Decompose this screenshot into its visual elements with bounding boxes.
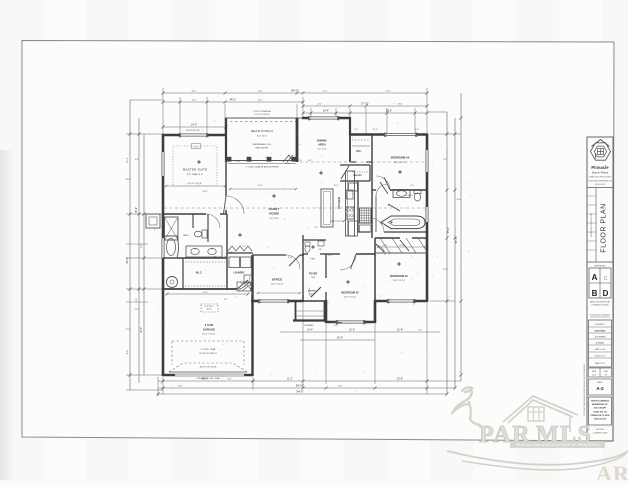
svg-text:12'-0": 12'-0" bbox=[258, 100, 263, 102]
svg-text:5'-4": 5'-4" bbox=[242, 246, 246, 248]
svg-text:12'-4": 12'-4" bbox=[307, 329, 313, 332]
svg-text:12'-8": 12'-8" bbox=[382, 245, 387, 247]
svg-text:SCALE 1/4"=1': SCALE 1/4"=1' bbox=[594, 355, 606, 358]
svg-text:GARAGE: GARAGE bbox=[203, 328, 215, 332]
svg-text:SLOPE 1/8" PER FT: SLOPE 1/8" PER FT bbox=[199, 353, 217, 355]
svg-text:POST: POST bbox=[285, 163, 291, 165]
svg-text:9'-0" CLG.: 9'-0" CLG. bbox=[317, 149, 327, 151]
svg-text:DAVID WADE: DAVID WADE bbox=[595, 330, 607, 333]
svg-text:12'-0": 12'-0" bbox=[258, 91, 263, 93]
svg-text:58'-10": 58'-10" bbox=[296, 384, 304, 388]
svg-text:14'-0": 14'-0" bbox=[202, 191, 207, 193]
svg-text:18'-4": 18'-4" bbox=[140, 327, 143, 333]
svg-text:OFFICE: OFFICE bbox=[272, 278, 282, 282]
svg-text:24'-6": 24'-6" bbox=[257, 185, 262, 187]
svg-text:Listing plan for Qualification: Listing plan for Qualification bbox=[590, 314, 611, 317]
svg-text:MASTER SUITE: MASTER SUITE bbox=[183, 168, 208, 172]
svg-text:55'-2": 55'-2" bbox=[447, 227, 450, 233]
svg-text:22'-8": 22'-8" bbox=[397, 378, 403, 381]
svg-text:20'-0" X 22'-0": 20'-0" X 22'-0" bbox=[203, 334, 216, 336]
svg-text:11'-4" X 12'-0": 11'-4" X 12'-0" bbox=[393, 280, 406, 282]
svg-text:COURT, STE. 100: COURT, STE. 100 bbox=[593, 411, 607, 413]
svg-text:DESIGN BY: DESIGN BY bbox=[595, 324, 605, 326]
svg-text:15'-4": 15'-4" bbox=[323, 91, 328, 93]
svg-text:14'-0": 14'-0" bbox=[191, 124, 197, 127]
svg-text:FLOOR PLAN: FLOOR PLAN bbox=[601, 203, 608, 252]
svg-text:DRIVEWAY 4" CONC. SLAB: DRIVEWAY 4" CONC. SLAB bbox=[197, 377, 221, 380]
svg-text:Pinnacle: Pinnacle bbox=[591, 165, 609, 170]
svg-text:9'-0": 9'-0" bbox=[443, 159, 447, 161]
svg-text:12'-8": 12'-8" bbox=[397, 329, 403, 332]
svg-text:A: A bbox=[592, 273, 598, 282]
svg-text:13'-0": 13'-0" bbox=[349, 329, 355, 332]
svg-text:UNFINISHED CLG.: UNFINISHED CLG. bbox=[252, 144, 271, 146]
svg-text:HALL: HALL bbox=[230, 251, 235, 254]
svg-text:9'-6": 9'-6" bbox=[136, 298, 138, 303]
svg-text:4225 CONCEPT: 4225 CONCEPT bbox=[594, 407, 607, 410]
svg-text:25'-6": 25'-6" bbox=[372, 129, 377, 131]
svg-text:FAMILY: FAMILY bbox=[269, 207, 280, 211]
svg-text:13'-2": 13'-2" bbox=[443, 269, 448, 271]
svg-text:3'-0": 3'-0" bbox=[415, 129, 419, 131]
svg-text:4'-6": 4'-6" bbox=[228, 379, 232, 381]
svg-text:B: B bbox=[592, 289, 598, 298]
svg-text:PENSACOLA, FL 32514: PENSACOLA, FL 32514 bbox=[591, 414, 610, 417]
svg-text:25'-6": 25'-6" bbox=[386, 91, 391, 93]
svg-text:IL-1706-10: IL-1706-10 bbox=[596, 343, 604, 345]
svg-text:46'-2": 46'-2" bbox=[230, 98, 237, 102]
svg-text:A-2: A-2 bbox=[596, 386, 604, 391]
svg-text:10'-0" X 11'-6": 10'-0" X 11'-6" bbox=[271, 284, 284, 286]
svg-text:ENTRY: ENTRY bbox=[308, 291, 316, 293]
svg-text:TILE: TILE bbox=[311, 277, 316, 279]
svg-text:(COV'D PORCH): (COV'D PORCH) bbox=[254, 114, 270, 116]
svg-text:Home Plans: Home Plans bbox=[592, 171, 609, 175]
svg-text:5'-4": 5'-4" bbox=[354, 129, 358, 131]
svg-text:13'-2": 13'-2" bbox=[333, 185, 338, 187]
svg-text:6'-0": 6'-0" bbox=[418, 330, 422, 332]
svg-text:BATH: BATH bbox=[183, 234, 189, 237]
svg-text:LIN.: LIN. bbox=[318, 249, 322, 251]
svg-text:SIDEWALK: SIDEWALK bbox=[304, 324, 314, 327]
svg-text:46'-2": 46'-2" bbox=[192, 91, 197, 93]
svg-text:11'-0": 11'-0" bbox=[410, 185, 415, 187]
svg-text:37'-10": 37'-10" bbox=[361, 102, 369, 106]
svg-text:8'-0": 8'-0" bbox=[308, 160, 312, 162]
svg-text:84'-0": 84'-0" bbox=[296, 390, 303, 394]
svg-text:11'-2": 11'-2" bbox=[287, 378, 293, 381]
svg-text:21'-8": 21'-8" bbox=[202, 292, 207, 294]
svg-text:6'-0": 6'-0" bbox=[334, 325, 338, 327]
svg-text:ROOM: ROOM bbox=[269, 212, 279, 216]
svg-text:20'-4": 20'-4" bbox=[126, 179, 131, 181]
svg-text:8'-0": 8'-0" bbox=[127, 350, 129, 355]
svg-text:REAR PORCH: REAR PORCH bbox=[251, 129, 273, 133]
svg-text:60'-0": 60'-0" bbox=[125, 257, 129, 264]
svg-text:LAUNDRY: LAUNDRY bbox=[233, 272, 245, 275]
svg-text:W.I.C.: W.I.C. bbox=[196, 272, 203, 275]
svg-text:ENGINEERING, INC.: ENGINEERING, INC. bbox=[592, 404, 609, 406]
svg-text:PANTRY: PANTRY bbox=[353, 174, 362, 177]
svg-text:22'-0": 22'-0" bbox=[126, 329, 131, 331]
svg-text:DESIGN & DRAWINGS: DESIGN & DRAWINGS bbox=[591, 400, 610, 403]
svg-text:SHEET: SHEET bbox=[597, 382, 603, 384]
svg-text:AREA: AREA bbox=[318, 143, 326, 147]
svg-text:16'X7' O.H. DOOR: 16'X7' O.H. DOOR bbox=[200, 367, 217, 369]
svg-text:4" CONC. SLAB: 4" CONC. SLAB bbox=[201, 348, 216, 351]
svg-text:6'-0": 6'-0" bbox=[298, 160, 302, 162]
svg-text:JOB NUMBER: JOB NUMBER bbox=[594, 337, 606, 339]
svg-text:26'-0": 26'-0" bbox=[337, 337, 343, 340]
svg-text:12'-4": 12'-4" bbox=[338, 386, 343, 388]
svg-text:BEDROOM #3: BEDROOM #3 bbox=[390, 274, 408, 278]
svg-text:8'-2": 8'-2" bbox=[318, 104, 322, 106]
svg-text:9'-0" TRAY CLG.: 9'-0" TRAY CLG. bbox=[187, 173, 204, 176]
svg-text:15'-4" X 16'-0": 15'-4" X 16'-0" bbox=[188, 183, 202, 185]
svg-text:PAGE 2 OF 6: PAGE 2 OF 6 bbox=[595, 362, 605, 365]
svg-text:9'-4" CLG.: 9'-4" CLG. bbox=[205, 306, 214, 308]
svg-text:9'-0" CLG.: 9'-0" CLG. bbox=[257, 136, 267, 138]
svg-text:DATE: 6-1-20: DATE: 6-1-20 bbox=[595, 348, 605, 351]
svg-text:10'-2": 10'-2" bbox=[287, 257, 292, 259]
svg-text:BATH: BATH bbox=[408, 194, 414, 197]
svg-text:26'-8": 26'-8" bbox=[135, 207, 138, 213]
svg-text:BEDROOM #2: BEDROOM #2 bbox=[341, 291, 359, 295]
svg-text:9'-8": 9'-8" bbox=[314, 227, 318, 229]
svg-text:D.D.: D.D. bbox=[194, 146, 198, 148]
svg-text:2 CAR: 2 CAR bbox=[205, 323, 213, 327]
svg-text:NOT FOR: NOT FOR bbox=[596, 429, 605, 431]
svg-text:11'-2": 11'-2" bbox=[135, 309, 140, 311]
svg-text:M.C.: M.C. bbox=[356, 150, 361, 153]
svg-text:D: D bbox=[603, 289, 609, 298]
svg-text:PDR.: PDR. bbox=[311, 259, 316, 261]
svg-text:8'-0": 8'-0" bbox=[224, 299, 228, 301]
svg-text:CLOS.: CLOS. bbox=[399, 245, 405, 247]
svg-text:15'-4": 15'-4" bbox=[323, 110, 329, 113]
svg-text:(850) 555-0199: (850) 555-0199 bbox=[594, 419, 606, 421]
svg-text:14'-0": 14'-0" bbox=[192, 100, 197, 102]
svg-text:BR WINDOW: BR WINDOW bbox=[186, 130, 200, 132]
svg-text:11'-0" X 12'-2": 11'-0" X 12'-2" bbox=[394, 162, 407, 164]
svg-text:AR: AR bbox=[596, 461, 628, 480]
svg-text:12'-2": 12'-2" bbox=[127, 157, 129, 163]
svg-text:KITCHEN: KITCHEN bbox=[337, 197, 341, 209]
svg-text:9'-0" CLG.: 9'-0" CLG. bbox=[269, 218, 279, 220]
svg-text:25'-6": 25'-6" bbox=[386, 110, 392, 113]
svg-text:11'-0" X 13'-0": 11'-0" X 13'-0" bbox=[344, 297, 357, 299]
svg-text:BEDROOM #4: BEDROOM #4 bbox=[391, 156, 410, 160]
svg-text:COL.: COL. bbox=[236, 161, 241, 163]
svg-text:C: C bbox=[604, 276, 608, 282]
svg-text:6'-8": 6'-8" bbox=[135, 159, 139, 161]
svg-text:REVISIONS: REVISIONS bbox=[595, 266, 607, 268]
svg-text:4" CONC. SLAB W/ BROOM FINISH: 4" CONC. SLAB W/ BROOM FINISH bbox=[246, 166, 279, 169]
svg-text:(850) 555-0123: (850) 555-0123 bbox=[595, 184, 605, 186]
svg-text:BROOM FIN.: BROOM FIN. bbox=[255, 148, 268, 150]
svg-text:25'-0": 25'-0" bbox=[457, 199, 462, 201]
svg-text:12X10 VERANDA: 12X10 VERANDA bbox=[253, 110, 271, 113]
svg-text:CONSTRUCTION: CONSTRUCTION bbox=[593, 433, 608, 435]
svg-text:3'-0": 3'-0" bbox=[328, 255, 332, 257]
svg-text:6-1-20: 6-1-20 bbox=[592, 375, 597, 377]
svg-text:20'-0": 20'-0" bbox=[178, 386, 183, 388]
svg-text:PENSACOLA ASSOCIATION OF REALT: PENSACOLA ASSOCIATION OF REALTORS bbox=[516, 443, 600, 447]
svg-text:FOYER: FOYER bbox=[309, 273, 318, 276]
svg-text:5'-8": 5'-8" bbox=[141, 244, 143, 249]
svg-text:13'-8": 13'-8" bbox=[398, 104, 403, 106]
